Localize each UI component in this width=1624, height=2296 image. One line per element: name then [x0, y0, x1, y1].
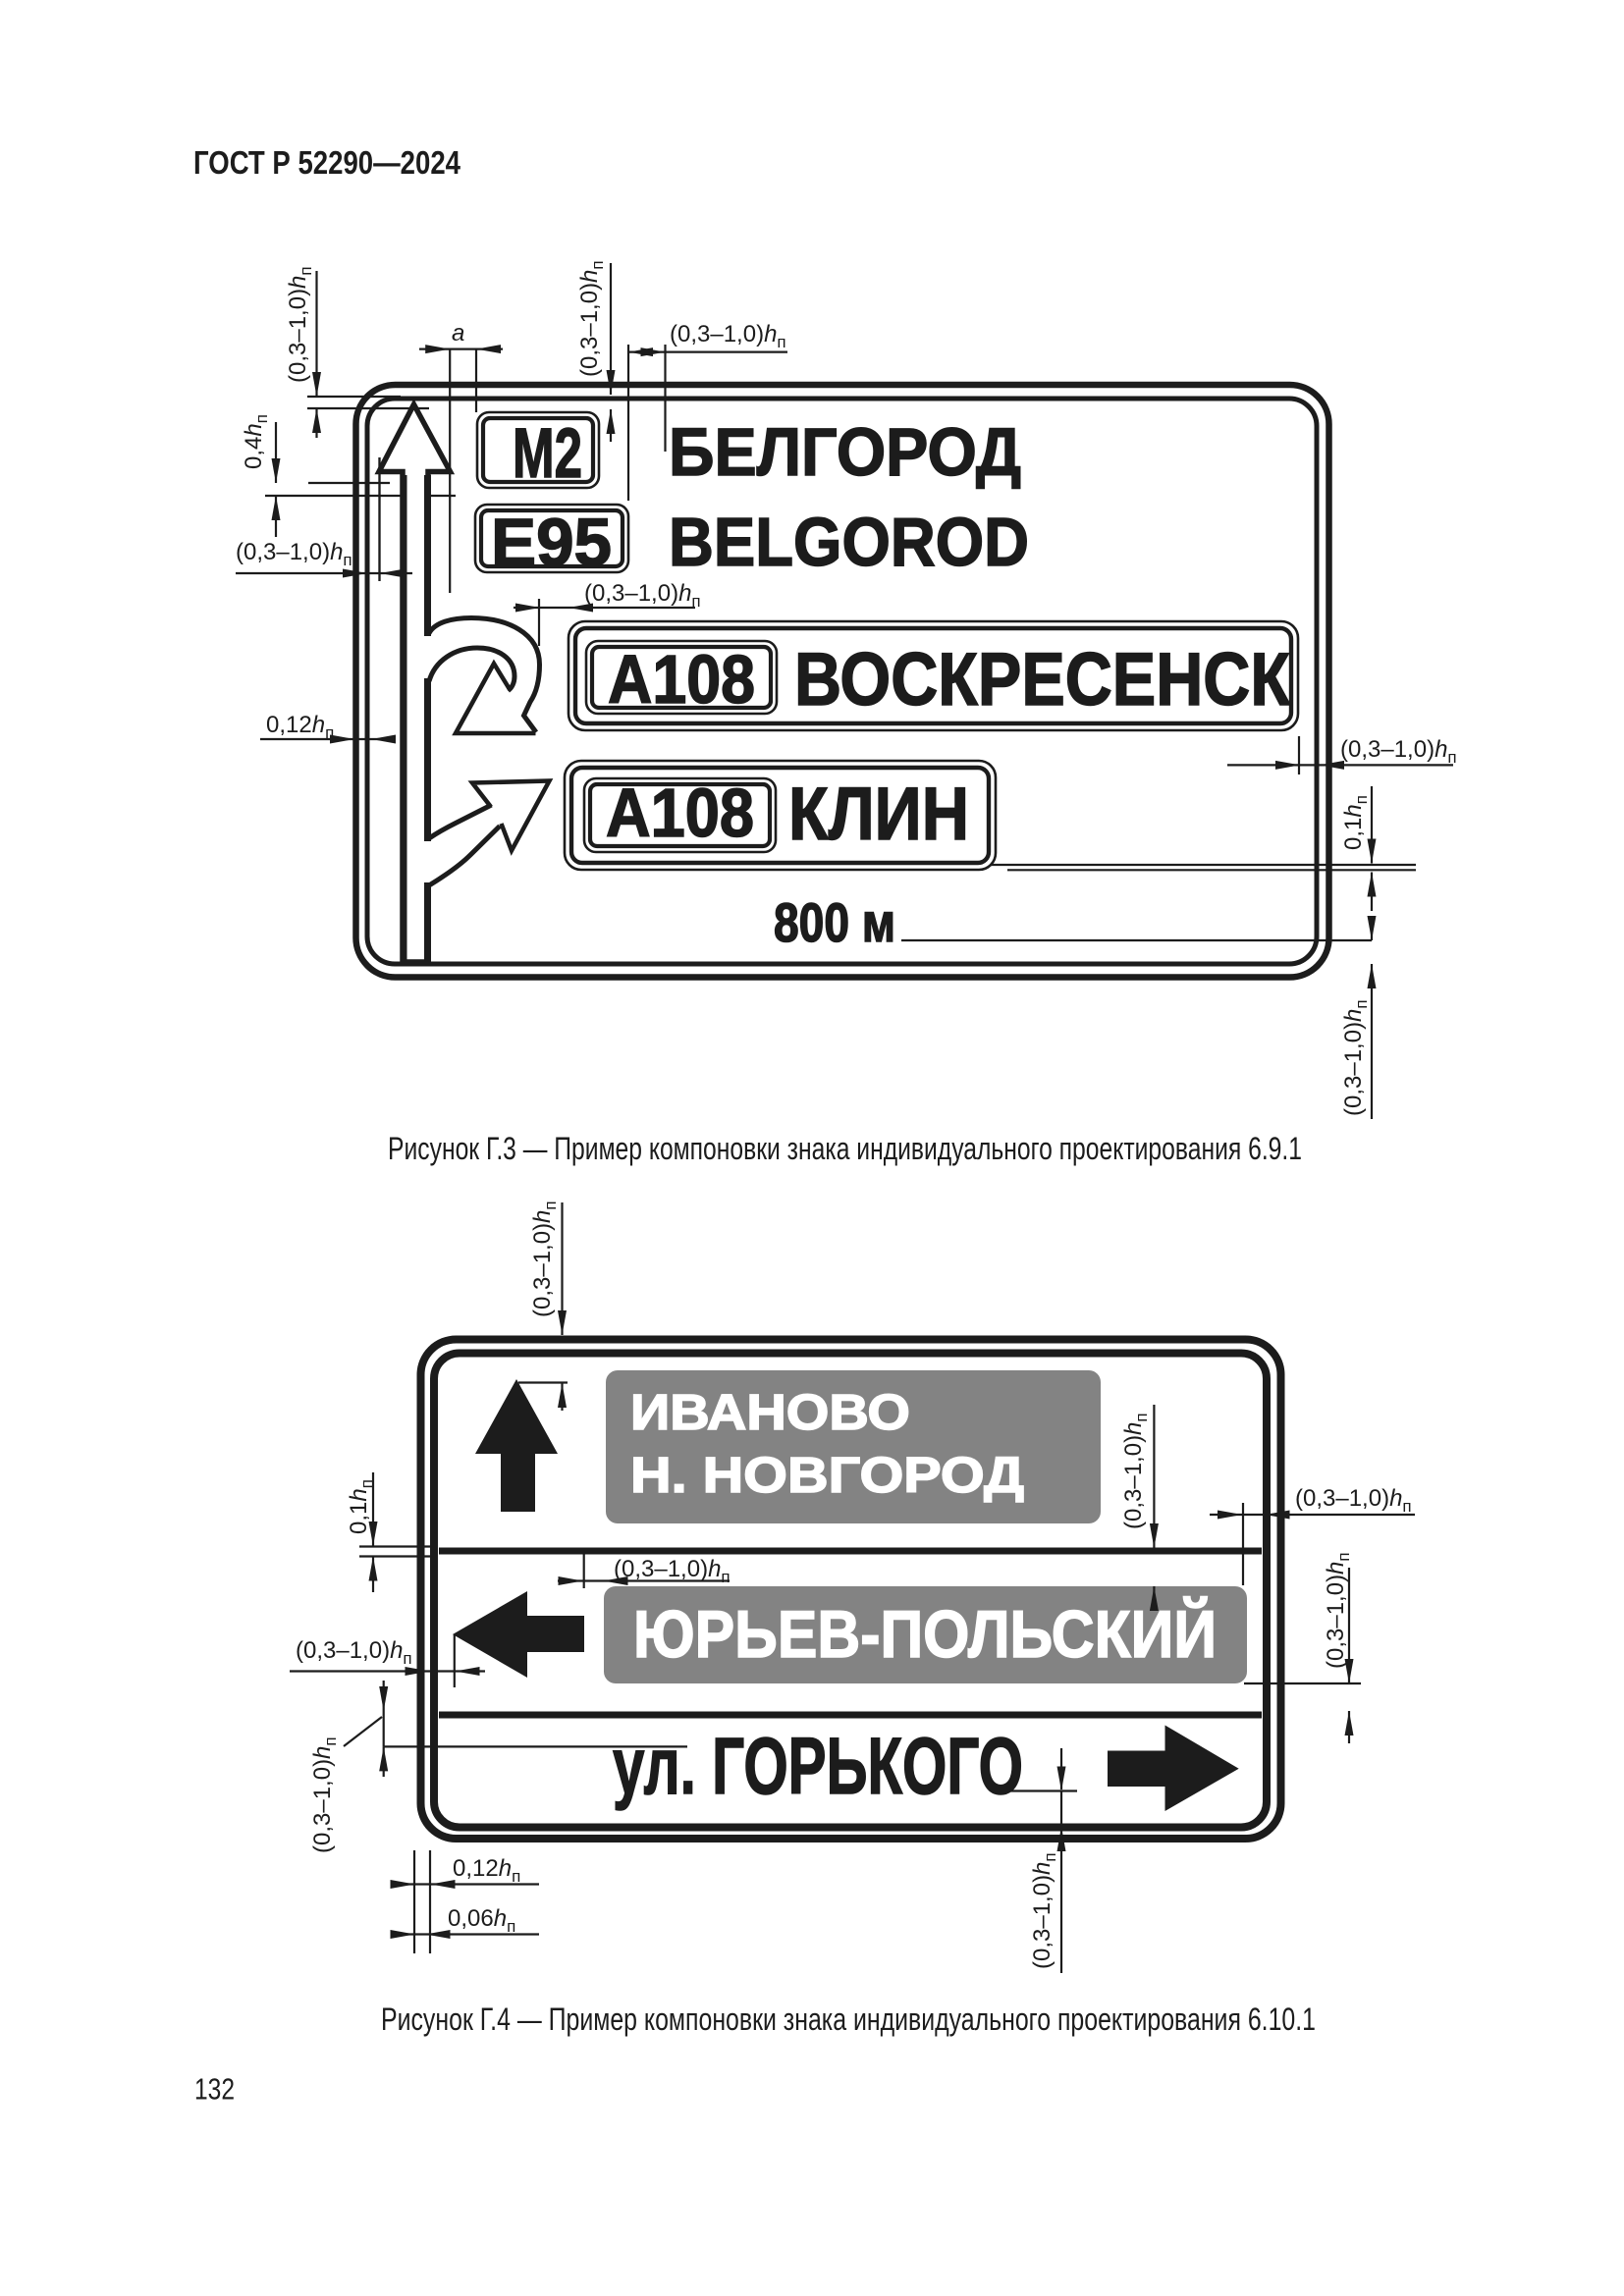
svg-text:ВОСКРЕСЕНСК: ВОСКРЕСЕНСК [794, 638, 1291, 721]
svg-text:a: a [452, 320, 464, 347]
svg-text:BELGOROD: BELGOROD [669, 504, 1029, 580]
svg-text:0,06hп: 0,06hп [448, 1905, 515, 1936]
svg-text:132: 132 [194, 2072, 235, 2107]
svg-text:800 м: 800 м [774, 891, 895, 953]
svg-text:0,1hп: 0,1hп [1340, 795, 1371, 850]
svg-text:ИВАНОВО: ИВАНОВО [630, 1384, 910, 1440]
svg-text:БЕЛГОРОД: БЕЛГОРОД [669, 414, 1021, 490]
svg-text:Рисунок Г.3 — Пример компоновк: Рисунок Г.3 — Пример компоновки знака ин… [388, 1131, 1302, 1166]
svg-text:Рисунок Г.4 — Пример компоновк: Рисунок Г.4 — Пример компоновки знака ин… [381, 2002, 1316, 2037]
svg-text:Е95: Е95 [491, 505, 612, 580]
svg-text:0,4hп: 0,4hп [241, 414, 271, 469]
svg-text:А108: А108 [608, 641, 755, 718]
svg-text:ГОСТ Р 52290—2024: ГОСТ Р 52290—2024 [193, 144, 461, 181]
svg-text:Н. НОВГОРОД: Н. НОВГОРОД [630, 1447, 1024, 1503]
svg-text:0,12hп: 0,12hп [266, 712, 334, 742]
svg-text:М2: М2 [513, 415, 582, 493]
svg-text:А108: А108 [606, 774, 754, 851]
svg-text:0,12hп: 0,12hп [453, 1855, 520, 1886]
svg-text:КЛИН: КЛИН [788, 773, 969, 856]
svg-text:ЮРЬЕВ-ПОЛЬСКИЙ: ЮРЬЕВ-ПОЛЬСКИЙ [633, 1596, 1217, 1672]
svg-text:ул. ГОРЬКОГО: ул. ГОРЬКОГО [613, 1722, 1023, 1811]
